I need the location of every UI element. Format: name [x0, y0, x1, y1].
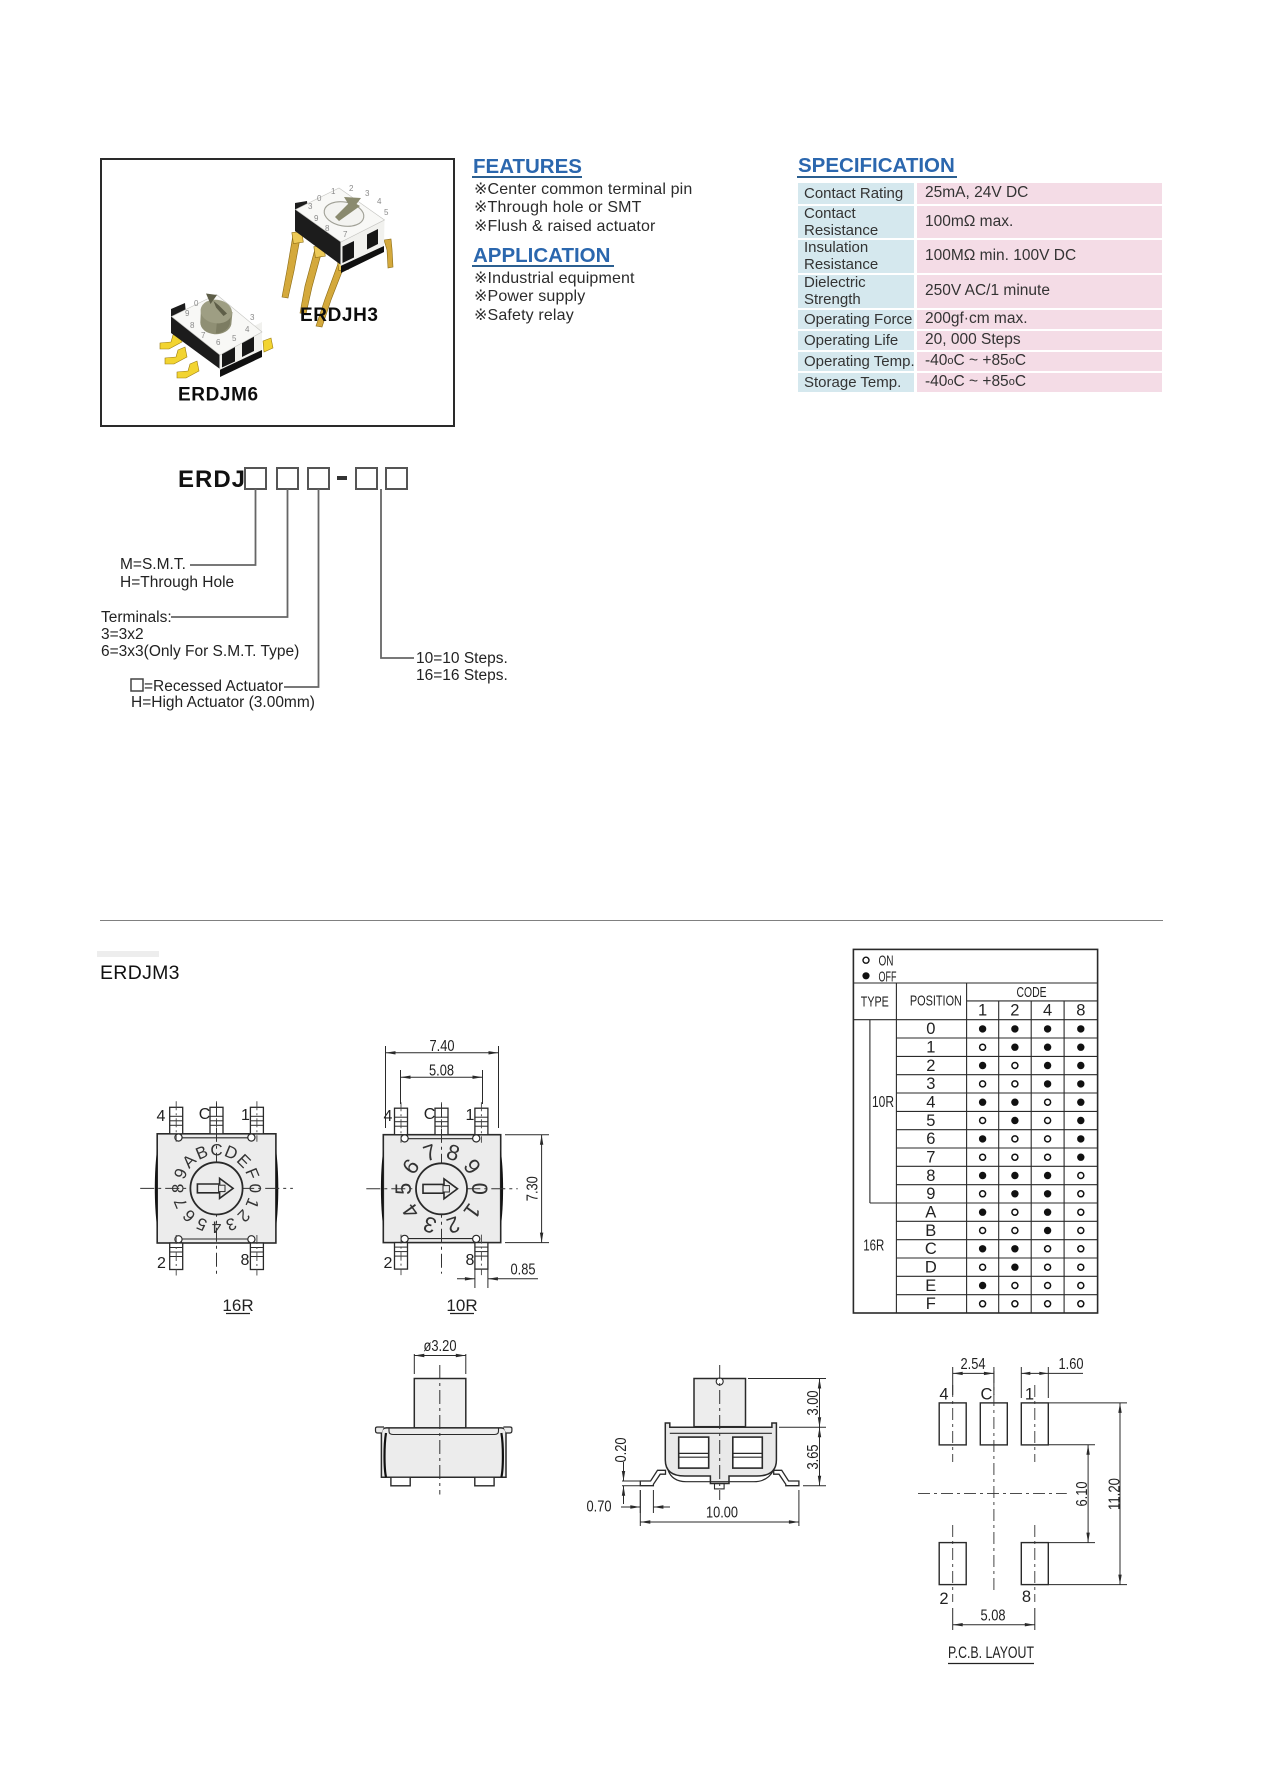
- svg-text:H=High Actuator (3.00mm): H=High Actuator (3.00mm): [131, 694, 315, 711]
- svg-text:0.20: 0.20: [613, 1437, 630, 1462]
- svg-text:F: F: [926, 1295, 936, 1313]
- svg-text:16R: 16R: [222, 1296, 253, 1315]
- svg-text:3.00: 3.00: [805, 1390, 822, 1415]
- svg-text:0: 0: [194, 299, 199, 308]
- svg-text:0.70: 0.70: [587, 1499, 612, 1516]
- svg-text:8: 8: [1076, 1002, 1085, 1020]
- svg-text:7.40: 7.40: [430, 1038, 455, 1055]
- svg-text:0: 0: [246, 1184, 265, 1193]
- svg-text:2: 2: [939, 1590, 948, 1608]
- svg-text:TYPE: TYPE: [861, 994, 889, 1011]
- svg-text:7: 7: [926, 1149, 935, 1167]
- svg-text:5: 5: [926, 1112, 935, 1130]
- svg-text:8: 8: [325, 224, 330, 233]
- svg-text:Terminals:: Terminals:: [101, 609, 172, 626]
- svg-text:ERDJM6: ERDJM6: [178, 385, 259, 406]
- svg-text:B: B: [925, 1222, 936, 1240]
- svg-text:3=3x2: 3=3x2: [101, 626, 144, 643]
- svg-text:ø3.20: ø3.20: [424, 1338, 457, 1355]
- svg-text:OFF: OFF: [879, 968, 897, 985]
- svg-text:2: 2: [1010, 1002, 1019, 1020]
- svg-text:7: 7: [201, 331, 206, 340]
- svg-text:1: 1: [1025, 1386, 1034, 1404]
- svg-text:5: 5: [232, 334, 237, 343]
- svg-text:5: 5: [391, 1183, 416, 1195]
- svg-text:POSITION: POSITION: [910, 993, 962, 1010]
- svg-text:0: 0: [926, 1020, 935, 1038]
- svg-text:M=S.M.T.: M=S.M.T.: [120, 556, 186, 573]
- svg-text:C: C: [424, 1106, 436, 1123]
- svg-text:8: 8: [1022, 1588, 1031, 1606]
- svg-text:2: 2: [384, 1255, 393, 1272]
- svg-text:8: 8: [926, 1167, 935, 1185]
- svg-text:1.60: 1.60: [1059, 1356, 1084, 1373]
- svg-text:4: 4: [939, 1386, 948, 1404]
- svg-text:ON: ON: [879, 953, 894, 970]
- svg-text:2: 2: [157, 1255, 166, 1272]
- svg-text:1: 1: [331, 187, 336, 196]
- svg-text:9: 9: [314, 214, 319, 223]
- svg-text:10.00: 10.00: [706, 1505, 738, 1522]
- svg-text:5.08: 5.08: [981, 1608, 1006, 1625]
- svg-text:H=Through Hole: H=Through Hole: [120, 574, 234, 591]
- svg-text:C: C: [210, 1140, 222, 1159]
- svg-text:0: 0: [467, 1183, 492, 1195]
- svg-text:6=3x3(Only For S.M.T. Type): 6=3x3(Only For S.M.T. Type): [101, 643, 299, 660]
- svg-text:11.20: 11.20: [1107, 1478, 1124, 1510]
- svg-text:10R: 10R: [872, 1094, 894, 1111]
- svg-text:3: 3: [926, 1075, 935, 1093]
- svg-text:7: 7: [343, 230, 348, 239]
- svg-text:10R: 10R: [446, 1296, 477, 1315]
- svg-text:8: 8: [169, 1184, 188, 1193]
- svg-text:9: 9: [185, 309, 190, 318]
- svg-text:3: 3: [365, 189, 370, 198]
- svg-text:1: 1: [466, 1107, 475, 1124]
- svg-text:C: C: [199, 1106, 211, 1123]
- svg-text:6: 6: [216, 338, 221, 347]
- svg-text:1: 1: [926, 1039, 935, 1057]
- svg-text:2: 2: [926, 1057, 935, 1075]
- svg-text:4: 4: [377, 197, 382, 206]
- svg-text:ERDJ: ERDJ: [178, 466, 246, 493]
- svg-text:9: 9: [926, 1185, 935, 1203]
- svg-text:7.30: 7.30: [525, 1176, 542, 1201]
- svg-text:5: 5: [384, 208, 389, 217]
- svg-text:6.10: 6.10: [1074, 1481, 1091, 1506]
- svg-text:3: 3: [308, 202, 313, 211]
- svg-text:5.08: 5.08: [429, 1063, 454, 1080]
- svg-text:8: 8: [241, 1252, 250, 1269]
- svg-text:P.C.B. LAYOUT: P.C.B. LAYOUT: [948, 1643, 1034, 1662]
- svg-text:4: 4: [245, 325, 250, 334]
- svg-text:4: 4: [1043, 1002, 1052, 1020]
- svg-text:0: 0: [317, 194, 322, 203]
- svg-text:C: C: [925, 1240, 937, 1258]
- svg-text:16R: 16R: [863, 1238, 884, 1255]
- svg-text:6: 6: [926, 1130, 935, 1148]
- svg-text:D: D: [925, 1259, 937, 1277]
- svg-text:1: 1: [978, 1002, 987, 1020]
- svg-text:1: 1: [241, 1107, 250, 1124]
- svg-text:2: 2: [349, 184, 354, 193]
- svg-text:C: C: [981, 1386, 993, 1404]
- svg-text:8: 8: [190, 321, 195, 330]
- svg-text:4: 4: [212, 1217, 221, 1236]
- svg-text:3: 3: [250, 313, 255, 322]
- svg-text:4: 4: [926, 1094, 935, 1112]
- svg-text:ERDJH3: ERDJH3: [300, 305, 379, 326]
- svg-text:3.65: 3.65: [805, 1444, 822, 1469]
- svg-text:4: 4: [157, 1108, 166, 1125]
- svg-text:2.54: 2.54: [961, 1356, 986, 1373]
- svg-text:E: E: [925, 1277, 936, 1295]
- svg-text:10=10 Steps.: 10=10 Steps.: [416, 650, 508, 667]
- svg-text:4: 4: [384, 1108, 393, 1125]
- svg-text:CODE: CODE: [1017, 984, 1047, 1001]
- svg-text:16=16 Steps.: 16=16 Steps.: [416, 667, 508, 684]
- svg-text:0.85: 0.85: [511, 1262, 536, 1279]
- svg-text:=Recessed Actuator: =Recessed Actuator: [144, 678, 283, 695]
- svg-text:A: A: [925, 1204, 936, 1222]
- svg-text:8: 8: [466, 1252, 475, 1269]
